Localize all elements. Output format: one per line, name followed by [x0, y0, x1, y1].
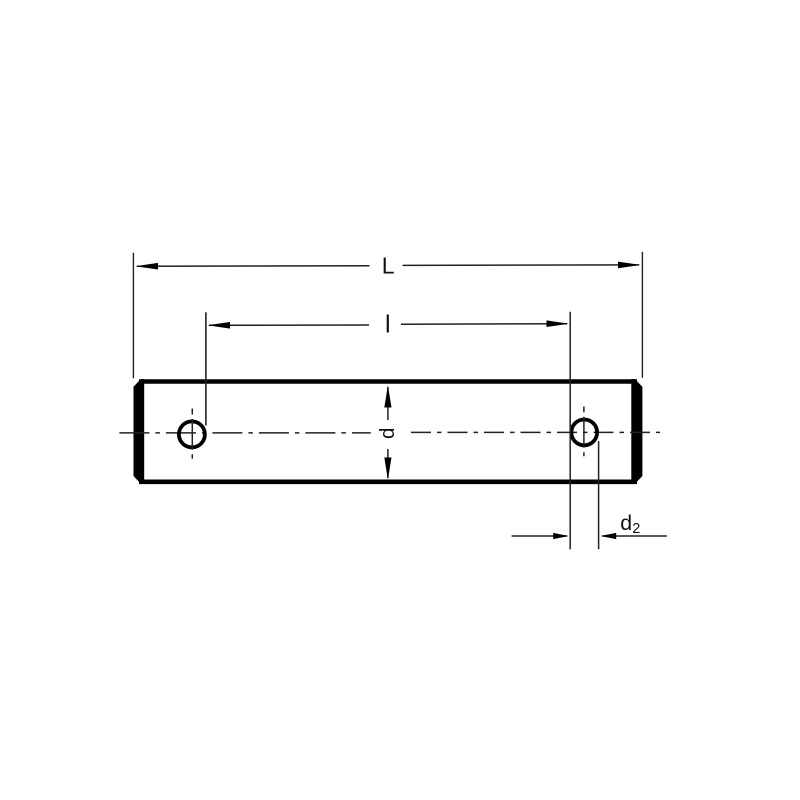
svg-text:l: l: [385, 311, 391, 339]
svg-text:L: L: [382, 252, 395, 278]
svg-text:d: d: [620, 511, 632, 535]
svg-text:d: d: [376, 428, 399, 439]
svg-text:2: 2: [632, 521, 640, 537]
